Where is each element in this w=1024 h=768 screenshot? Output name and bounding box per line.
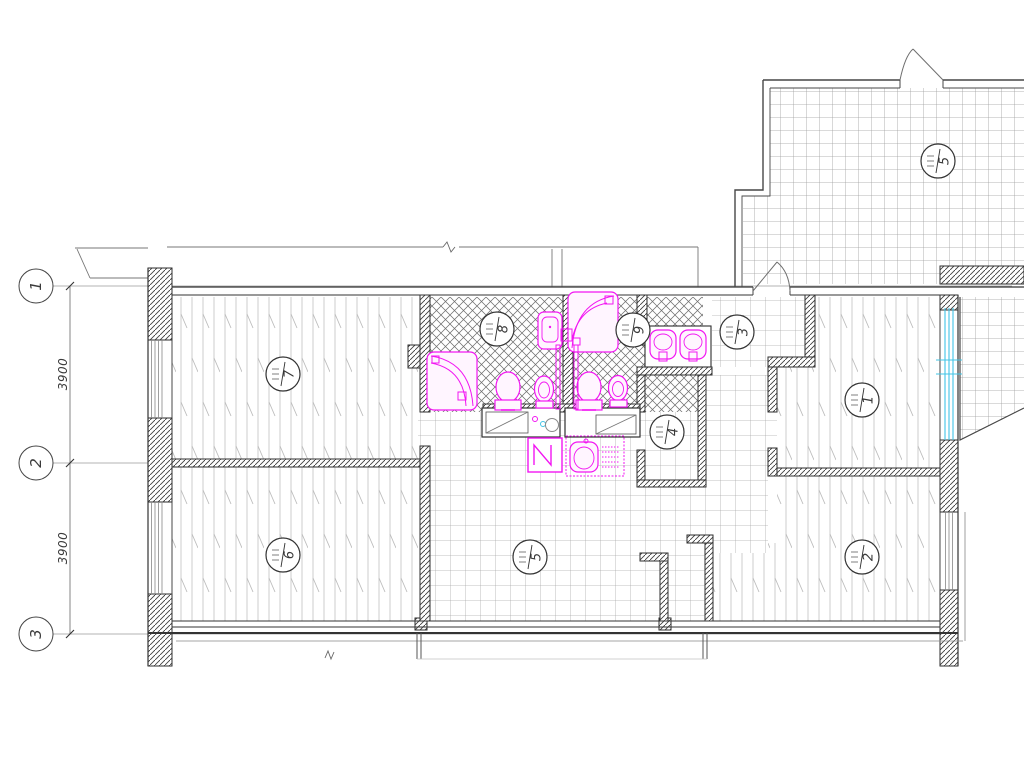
wall-pier	[148, 268, 172, 340]
hall-room2-wall	[687, 535, 713, 543]
corridor-right-floor	[706, 375, 768, 553]
partition-bath8-jog	[408, 345, 420, 368]
dimension-chain	[66, 282, 74, 638]
door-gap-floor-a	[768, 410, 777, 448]
terrace-top-door	[900, 49, 943, 88]
wall-pier	[940, 295, 958, 310]
room-tag-6: 6	[266, 538, 300, 572]
room-tag-1: 1	[845, 383, 879, 417]
partition-room3-right	[805, 295, 815, 357]
wall-pier	[940, 440, 958, 512]
window-left-bottom	[152, 502, 163, 594]
washing-machine	[528, 438, 562, 472]
floors	[172, 88, 1024, 621]
room-number: 8	[497, 325, 512, 333]
room-number: 7	[283, 369, 298, 378]
room-tag-2: 2	[845, 540, 879, 574]
cooktop-counter	[482, 408, 560, 437]
window-left-top	[152, 340, 163, 418]
room-tag-9: 9	[616, 313, 650, 347]
partition-hall-b	[768, 448, 777, 476]
room-number: 9	[633, 326, 648, 334]
partition-nook-band	[637, 367, 712, 375]
room-tag-4: 4	[650, 415, 684, 449]
break-mark	[443, 242, 455, 252]
partition-rooms-1-2	[777, 468, 940, 476]
room-tag-5-kitchen: 5	[513, 540, 547, 574]
wall-pier	[148, 594, 172, 666]
toilet-9	[576, 372, 602, 410]
kitchen-hall-wall	[640, 553, 668, 561]
room-tag-5-terrace: 5	[921, 144, 955, 178]
door-gap-floor-b	[418, 412, 432, 446]
partition-room3-jog	[768, 357, 815, 367]
grid-bubble-1: 1	[19, 269, 53, 303]
balcony-sides	[417, 633, 707, 659]
wall-pier	[148, 418, 172, 502]
dimension-label-1: 3900	[56, 358, 70, 391]
closet-wall	[637, 480, 706, 487]
grid-axis-label: 1	[27, 281, 45, 291]
grid-axis-label: 3	[27, 629, 45, 639]
toilet-8	[495, 372, 521, 410]
grid-bubbles: 1 2 3 3900 3900	[19, 269, 70, 651]
room-number: 6	[283, 551, 298, 559]
partition-hall-a	[768, 367, 777, 412]
closet-wall	[698, 375, 706, 487]
bidet-9	[609, 376, 628, 408]
corner-bathtub-9	[568, 292, 618, 352]
grid-bubble-3: 3	[19, 617, 53, 651]
room-number: 3	[737, 328, 752, 336]
balcony-break-mark	[325, 651, 334, 659]
shaft-lines	[552, 247, 698, 287]
bottom-window-band	[172, 621, 940, 627]
terrace-floor	[743, 88, 1024, 284]
window-right-bottom	[946, 512, 953, 590]
worktop-counter	[565, 408, 640, 437]
partition-room6-kitchen	[420, 446, 430, 621]
dimension-label-2: 3900	[56, 532, 70, 565]
room-number: 5	[530, 553, 545, 561]
grid-bubble-2: 2	[19, 446, 53, 480]
hall-room2-wall	[705, 543, 713, 621]
wall-top-right	[940, 266, 1024, 284]
room-tag-8: 8	[480, 312, 514, 346]
room-number: 5	[938, 157, 953, 165]
room-tag-7: 7	[266, 357, 300, 391]
floor-plan-canvas: 7 8 9 3 1	[0, 0, 1024, 768]
grid-axis-label: 2	[27, 458, 45, 468]
room-tag-3: 3	[720, 315, 754, 349]
corner-bathtub-8	[427, 352, 477, 410]
bidet-8	[535, 376, 554, 408]
wall-pier	[940, 590, 958, 666]
kitchen-hall-wall	[660, 561, 668, 621]
room-number: 4	[667, 428, 682, 436]
room-number: 2	[862, 553, 877, 561]
terrace-side-floor	[960, 297, 1024, 440]
room-number: 1	[862, 396, 877, 404]
washbasin-8	[538, 312, 562, 349]
entrance-canopy	[75, 248, 148, 278]
partition-rooms-7-6	[172, 459, 420, 467]
